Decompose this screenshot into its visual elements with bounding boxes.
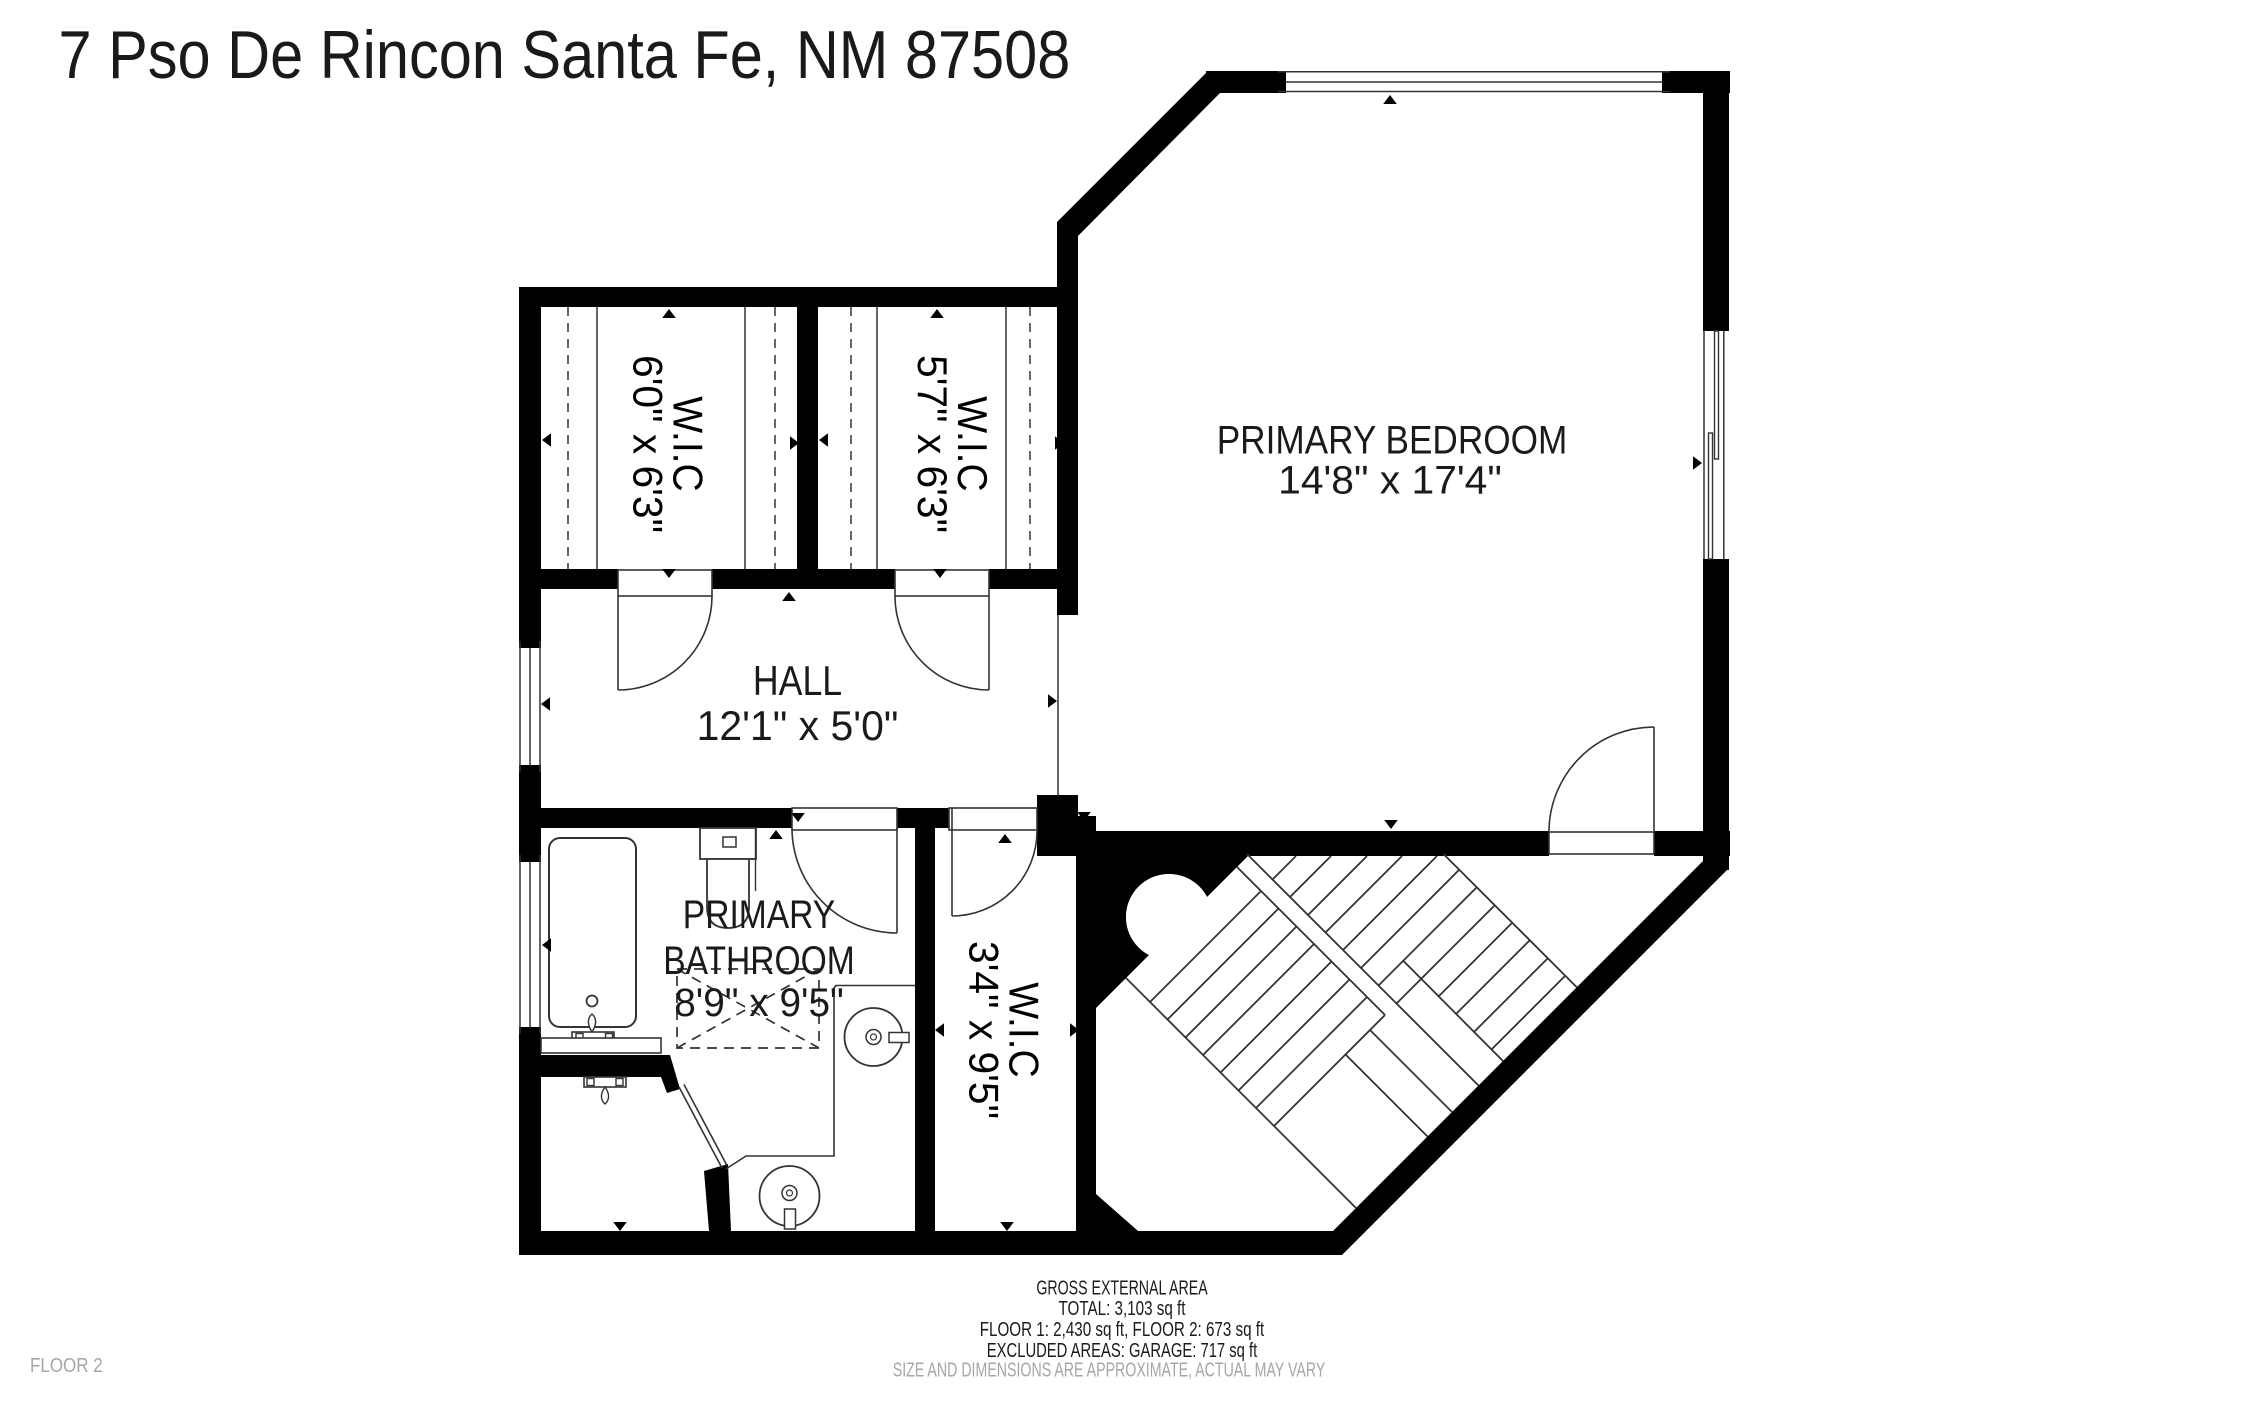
svg-text:SIZE AND DIMENSIONS ARE APPROX: SIZE AND DIMENSIONS ARE APPROXIMATE, ACT… [893,1358,1326,1381]
svg-text:12'1" x 5'0": 12'1" x 5'0" [697,702,899,750]
svg-text:14'8" x 17'4": 14'8" x 17'4" [1278,457,1502,503]
svg-text:BATHROOM: BATHROOM [663,938,855,982]
svg-text:GROSS EXTERNAL AREA: GROSS EXTERNAL AREA [1036,1276,1208,1299]
svg-text:FLOOR 2: FLOOR 2 [30,1354,103,1377]
svg-text:HALL: HALL [753,658,842,704]
svg-text:FLOOR 1: 2,430 sq ft, FLOOR 2:: FLOOR 1: 2,430 sq ft, FLOOR 2: 673 sq ft [980,1318,1265,1341]
svg-text:5'7" x 6'3": 5'7" x 6'3" [909,355,956,533]
svg-text:3'4" x 9'5": 3'4" x 9'5" [960,941,1007,1119]
svg-text:6'0" x 6'3": 6'0" x 6'3" [624,355,671,533]
svg-text:8'9" x 9'5": 8'9" x 9'5" [674,980,844,1025]
svg-text:PRIMARY: PRIMARY [683,892,835,936]
svg-text:TOTAL: 3,103 sq ft: TOTAL: 3,103 sq ft [1059,1297,1186,1320]
svg-text:7 Pso De Rincon Santa Fe, NM 8: 7 Pso De Rincon Santa Fe, NM 87508 [59,16,1071,93]
svg-text:PRIMARY BEDROOM: PRIMARY BEDROOM [1217,417,1568,462]
